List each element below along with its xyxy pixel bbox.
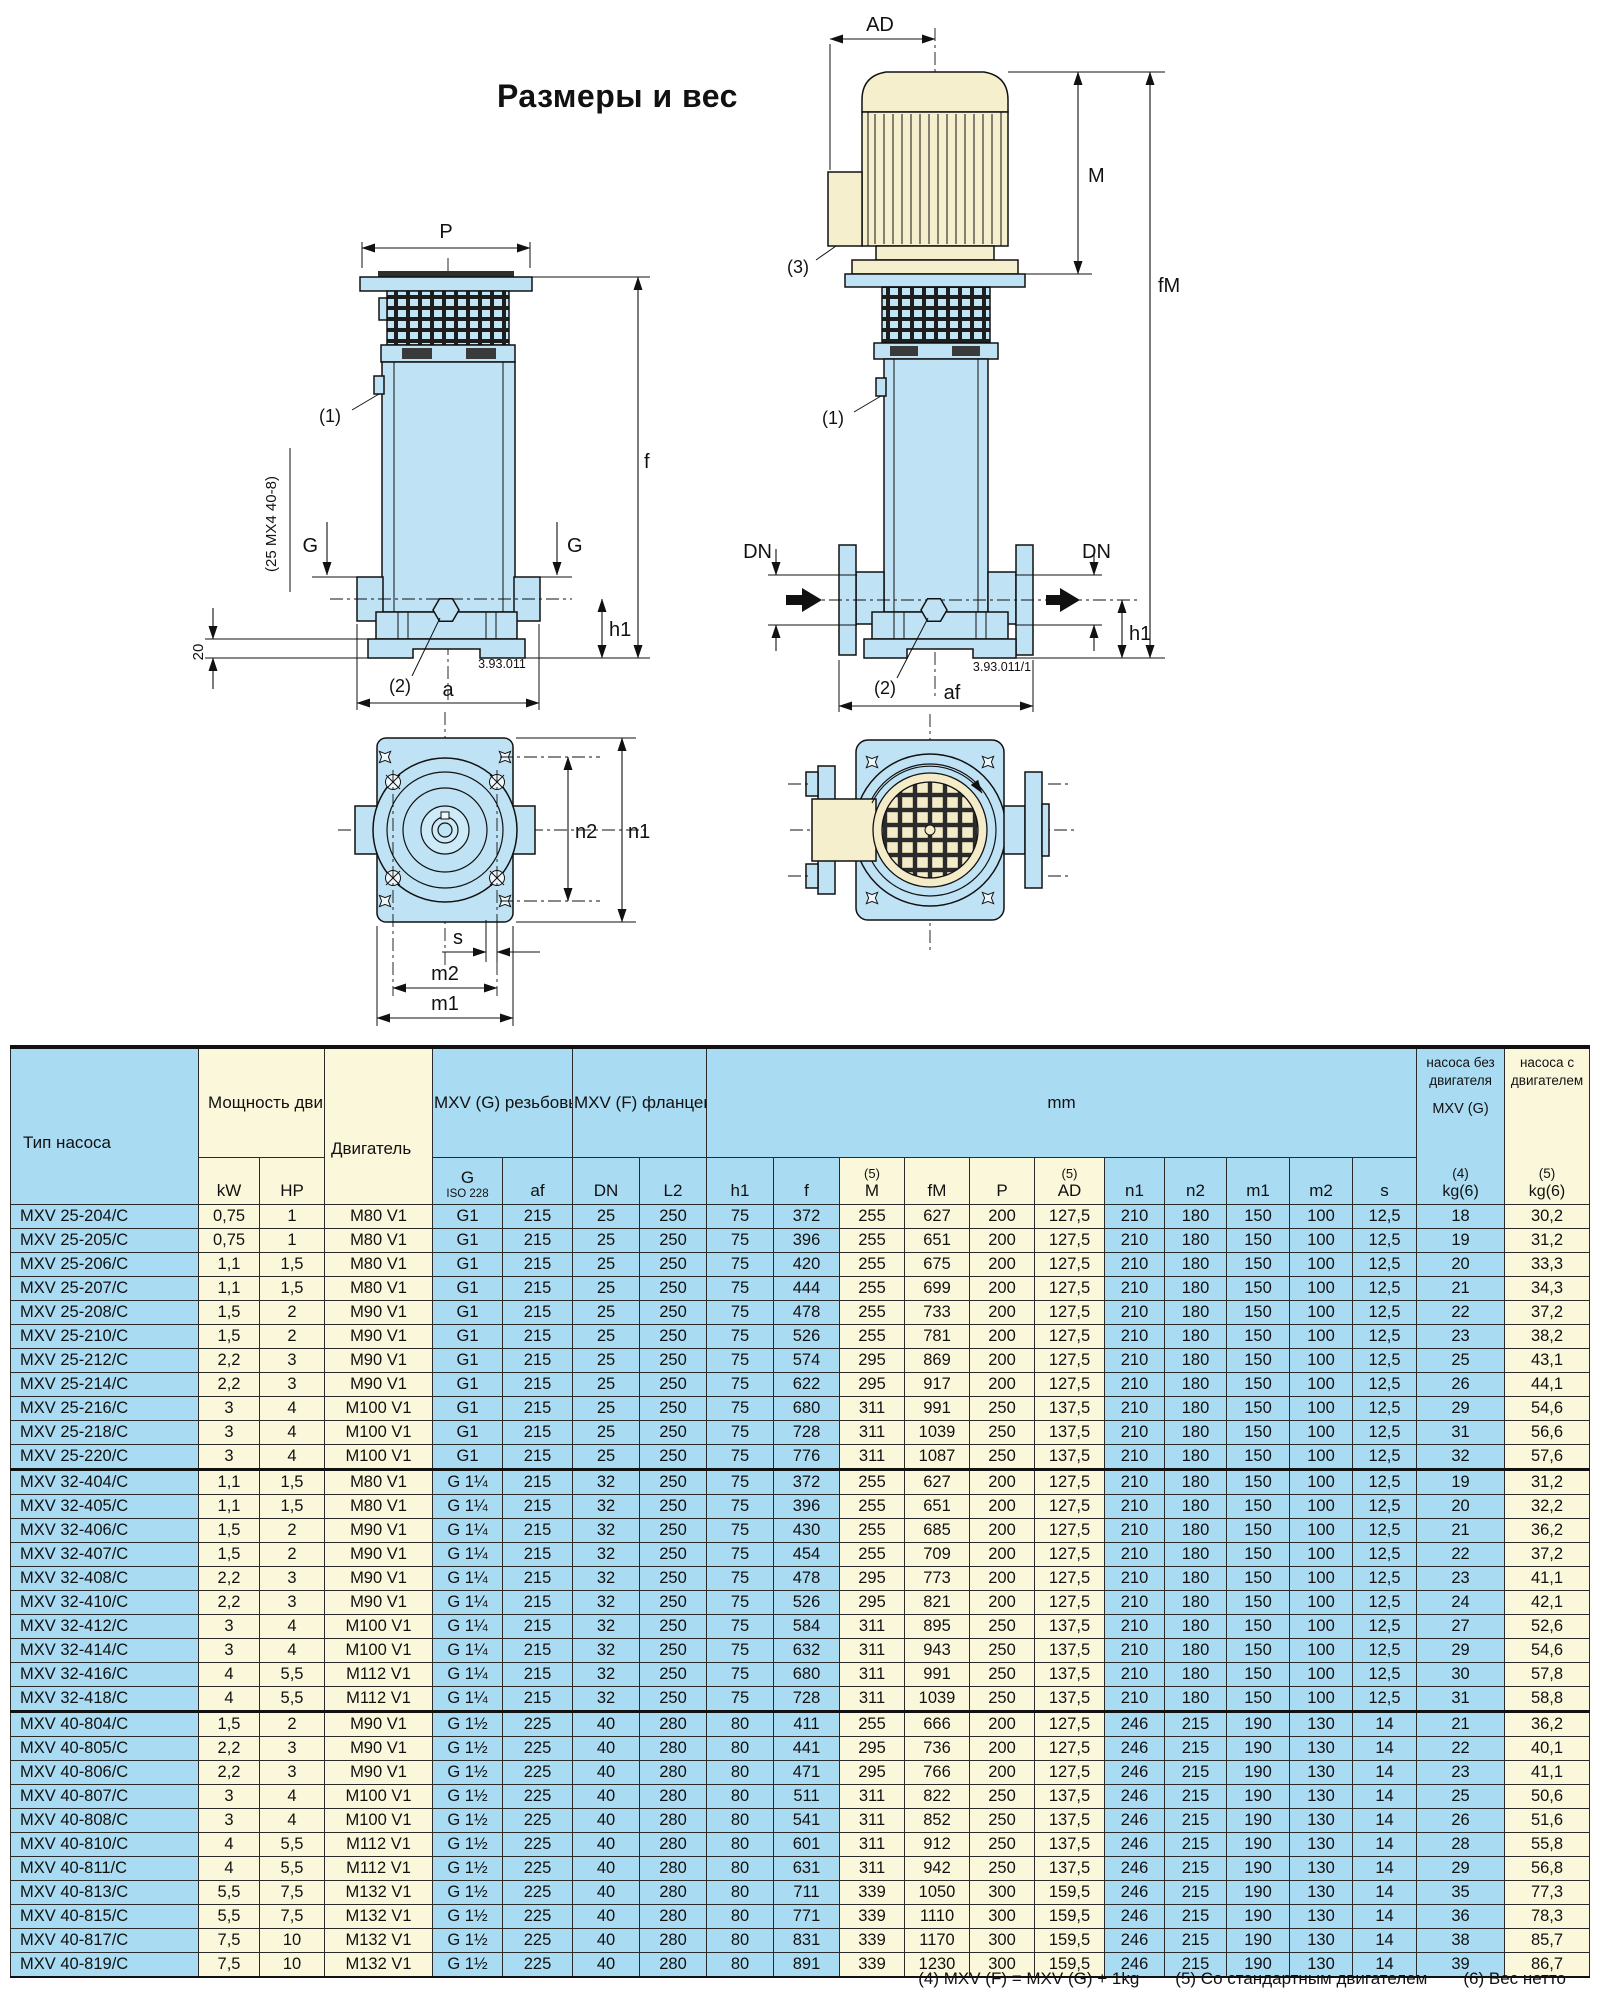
spec-cell: 215 [503, 1277, 573, 1301]
spec-cell: 75 [707, 1301, 774, 1325]
spec-cell: 27 [1417, 1615, 1505, 1639]
spec-cell: 12,5 [1353, 1253, 1417, 1277]
spec-cell: 25 [1417, 1785, 1505, 1809]
spec-cell: 12,5 [1353, 1663, 1417, 1687]
weight-without-note: (4) [1452, 1165, 1469, 1183]
spec-cell: 255 [840, 1205, 905, 1229]
spec-cell: 685 [905, 1519, 970, 1543]
table-row: MXV 32-405/C1,11,5M80 V1G 1¼215322507539… [11, 1495, 1590, 1519]
spec-cell: 10 [260, 1953, 325, 1978]
spec-cell: 215 [503, 1397, 573, 1421]
spec-cell: 23 [1417, 1567, 1505, 1591]
table-row: MXV 32-418/C45,5M112 V1G 1¼2153225075728… [11, 1687, 1590, 1712]
spec-cell: 430 [774, 1519, 840, 1543]
spec-cell: 75 [707, 1519, 774, 1543]
spec-cell: 280 [640, 1953, 707, 1978]
spec-cell: 180 [1165, 1253, 1227, 1277]
weight-unit: kg(6) [1442, 1183, 1478, 1201]
pump-type-cell: MXV 25-216/C [11, 1397, 199, 1421]
spec-cell: 190 [1227, 1712, 1290, 1737]
spec-cell: 26 [1417, 1373, 1505, 1397]
spec-cell: 25 [1417, 1349, 1505, 1373]
spec-cell: 246 [1105, 1881, 1165, 1905]
spec-cell: 300 [970, 1905, 1035, 1929]
unit-af: af [503, 1158, 573, 1205]
table-row: MXV 40-807/C34M100 V1G 1½225402808051131… [11, 1785, 1590, 1809]
spec-cell: 137,5 [1035, 1639, 1105, 1663]
spec-cell: 55,8 [1505, 1833, 1590, 1857]
spec-cell: 180 [1165, 1591, 1227, 1615]
spec-cell: 180 [1165, 1301, 1227, 1325]
spec-cell: 250 [640, 1445, 707, 1470]
spec-cell: 766 [905, 1761, 970, 1785]
spec-cell: 250 [640, 1205, 707, 1229]
spec-cell: 200 [970, 1567, 1035, 1591]
spec-cell: 215 [503, 1567, 573, 1591]
spec-cell: 215 [503, 1373, 573, 1397]
spec-cell: 225 [503, 1785, 573, 1809]
spec-cell: 80 [707, 1761, 774, 1785]
spec-cell: 471 [774, 1761, 840, 1785]
spec-cell: 311 [840, 1833, 905, 1857]
spec-cell: 210 [1105, 1591, 1165, 1615]
spec-cell: 21 [1417, 1519, 1505, 1543]
spec-cell: 14 [1353, 1929, 1417, 1953]
spec-cell: 75 [707, 1349, 774, 1373]
spec-cell: 12,5 [1353, 1325, 1417, 1349]
spec-cell: 190 [1227, 1905, 1290, 1929]
spec-cell: 150 [1227, 1349, 1290, 1373]
spec-table: Тип насоса Мощность двигателя Двигатель … [10, 1045, 1590, 1978]
spec-cell: 776 [774, 1445, 840, 1470]
spec-cell: G 1¼ [433, 1663, 503, 1687]
spec-cell: 250 [640, 1519, 707, 1543]
spec-cell: 200 [970, 1737, 1035, 1761]
spec-cell: M112 V1 [325, 1687, 433, 1712]
drawing-top-view-flanged [788, 714, 1075, 950]
spec-cell: 127,5 [1035, 1737, 1105, 1761]
spec-cell: 3 [199, 1397, 260, 1421]
spec-cell: M90 V1 [325, 1543, 433, 1567]
spec-cell: G1 [433, 1349, 503, 1373]
spec-cell: 127,5 [1035, 1567, 1105, 1591]
spec-cell: 159,5 [1035, 1881, 1105, 1905]
spec-cell: 38,2 [1505, 1325, 1590, 1349]
spec-cell: 180 [1165, 1445, 1227, 1470]
spec-cell: 75 [707, 1277, 774, 1301]
spec-cell: M100 V1 [325, 1445, 433, 1470]
spec-cell: 3 [199, 1639, 260, 1663]
spec-cell: G1 [433, 1421, 503, 1445]
spec-cell: 12,5 [1353, 1687, 1417, 1712]
spec-cell: 100 [1290, 1229, 1353, 1253]
spec-cell: 80 [707, 1881, 774, 1905]
spec-cell: 210 [1105, 1325, 1165, 1349]
spec-cell: 22 [1417, 1301, 1505, 1325]
spec-cell: 30,2 [1505, 1205, 1590, 1229]
pump-type-cell: MXV 32-405/C [11, 1495, 199, 1519]
spec-cell: 150 [1227, 1663, 1290, 1687]
spec-cell: 57,8 [1505, 1663, 1590, 1687]
unit-s: s [1353, 1158, 1417, 1205]
spec-cell: 250 [970, 1687, 1035, 1712]
spec-cell: 339 [840, 1953, 905, 1978]
spec-cell: 280 [640, 1712, 707, 1737]
spec-cell: G 1½ [433, 1857, 503, 1881]
table-row: MXV 40-810/C45,5M112 V1G 1½2254028080601… [11, 1833, 1590, 1857]
pump-type-cell: MXV 40-819/C [11, 1953, 199, 1978]
spec-cell: 75 [707, 1445, 774, 1470]
spec-cell: M132 V1 [325, 1905, 433, 1929]
spec-cell: 200 [970, 1373, 1035, 1397]
spec-cell: 2 [260, 1519, 325, 1543]
spec-cell: 190 [1227, 1881, 1290, 1905]
spec-cell: 75 [707, 1591, 774, 1615]
table-row: MXV 25-208/C1,52M90 V1G12152525075478255… [11, 1301, 1590, 1325]
spec-cell: 210 [1105, 1615, 1165, 1639]
spec-cell: 4 [199, 1687, 260, 1712]
spec-cell: 280 [640, 1809, 707, 1833]
spec-cell: 25 [573, 1301, 640, 1325]
table-row: MXV 32-404/C1,11,5M80 V1G 1¼215322507537… [11, 1470, 1590, 1495]
spec-cell: 25 [573, 1277, 640, 1301]
spec-cell: 210 [1105, 1470, 1165, 1495]
spec-cell: 150 [1227, 1470, 1290, 1495]
spec-cell: 311 [840, 1445, 905, 1470]
spec-cell: 150 [1227, 1373, 1290, 1397]
spec-cell: 159,5 [1035, 1905, 1105, 1929]
drawing-number: 3.93.011 [478, 657, 526, 671]
callout-1-right: (1) [822, 408, 844, 428]
spec-cell: 180 [1165, 1421, 1227, 1445]
spec-cell: M80 V1 [325, 1253, 433, 1277]
table-row: MXV 25-207/C1,11,5M80 V1G121525250754442… [11, 1277, 1590, 1301]
spec-cell: M80 V1 [325, 1470, 433, 1495]
col-header-mxv-f: MXV (F) фланцевые раструбы [573, 1047, 707, 1158]
spec-cell: 23 [1417, 1325, 1505, 1349]
spec-cell: 200 [970, 1712, 1035, 1737]
spec-cell: 200 [970, 1519, 1035, 1543]
spec-cell: M90 V1 [325, 1349, 433, 1373]
table-row: MXV 32-416/C45,5M112 V1G 1¼2153225075680… [11, 1663, 1590, 1687]
pump-type-cell: MXV 25-204/C [11, 1205, 199, 1229]
spec-cell: 280 [640, 1833, 707, 1857]
spec-cell: 675 [905, 1253, 970, 1277]
spec-cell: 180 [1165, 1373, 1227, 1397]
spec-cell: 255 [840, 1712, 905, 1737]
weight-without-series: MXV (G) [1432, 1101, 1488, 1117]
spec-cell: 300 [970, 1929, 1035, 1953]
spec-cell: 441 [774, 1737, 840, 1761]
spec-cell: 12,5 [1353, 1397, 1417, 1421]
spec-cell: 78,3 [1505, 1905, 1590, 1929]
spec-cell: 32 [573, 1543, 640, 1567]
spec-cell: 1,5 [199, 1712, 260, 1737]
spec-cell: 100 [1290, 1687, 1353, 1712]
spec-cell: 210 [1105, 1277, 1165, 1301]
pump-type-cell: MXV 25-218/C [11, 1421, 199, 1445]
pump-type-cell: MXV 40-808/C [11, 1809, 199, 1833]
table-row: MXV 40-817/C7,510M132 V1G 1½225402808083… [11, 1929, 1590, 1953]
spec-cell: 150 [1227, 1519, 1290, 1543]
spec-cell: 622 [774, 1373, 840, 1397]
spec-cell: 137,5 [1035, 1445, 1105, 1470]
spec-cell: 200 [970, 1277, 1035, 1301]
spec-cell: 130 [1290, 1929, 1353, 1953]
spec-cell: 250 [970, 1809, 1035, 1833]
spec-cell: 127,5 [1035, 1712, 1105, 1737]
spec-cell: 180 [1165, 1277, 1227, 1301]
spec-cell: G1 [433, 1445, 503, 1470]
spec-cell: 3 [199, 1421, 260, 1445]
spec-cell: 180 [1165, 1543, 1227, 1567]
spec-cell: 831 [774, 1929, 840, 1953]
spec-cell: 127,5 [1035, 1253, 1105, 1277]
pump-type-cell: MXV 40-813/C [11, 1881, 199, 1905]
callout-2-right: (2) [874, 678, 896, 698]
spec-cell: 7,5 [199, 1929, 260, 1953]
spec-cell: 100 [1290, 1615, 1353, 1639]
spec-cell: 1039 [905, 1687, 970, 1712]
spec-cell: 40 [573, 1785, 640, 1809]
spec-cell: M112 V1 [325, 1663, 433, 1687]
unit-m1: m1 [1227, 1158, 1290, 1205]
spec-cell: 75 [707, 1687, 774, 1712]
spec-cell: 150 [1227, 1495, 1290, 1519]
col-header-weight-without-motor: насоса без двигателя MXV (G) (4) kg(6) [1417, 1047, 1505, 1205]
pump-type-cell: MXV 32-410/C [11, 1591, 199, 1615]
spec-cell: 210 [1105, 1397, 1165, 1421]
unit-dn: DN [573, 1158, 640, 1205]
spec-cell: 1050 [905, 1881, 970, 1905]
spec-cell: 37,2 [1505, 1543, 1590, 1567]
table-row: MXV 25-205/C0,751M80 V1G1215252507539625… [11, 1229, 1590, 1253]
spec-cell: M100 V1 [325, 1639, 433, 1663]
spec-cell: 127,5 [1035, 1519, 1105, 1543]
dim-label-m1: m1 [431, 993, 459, 1015]
spec-cell: 250 [970, 1785, 1035, 1809]
spec-cell: M112 V1 [325, 1833, 433, 1857]
spec-cell: 180 [1165, 1205, 1227, 1229]
spec-cell: 311 [840, 1687, 905, 1712]
spec-cell: 5,5 [260, 1857, 325, 1881]
spec-cell: 444 [774, 1277, 840, 1301]
spec-cell: 255 [840, 1495, 905, 1519]
spec-cell: 311 [840, 1809, 905, 1833]
spec-cell: G 1¼ [433, 1687, 503, 1712]
spec-cell: 150 [1227, 1543, 1290, 1567]
spec-cell: 215 [503, 1639, 573, 1663]
spec-cell: 2 [260, 1325, 325, 1349]
dim-label-P: P [439, 221, 452, 243]
spec-cell: 150 [1227, 1639, 1290, 1663]
table-row: MXV 32-410/C2,23M90 V1G 1¼21532250755262… [11, 1591, 1590, 1615]
spec-cell: 215 [1165, 1857, 1227, 1881]
spec-cell: 14 [1353, 1761, 1417, 1785]
spec-cell: 225 [503, 1953, 573, 1978]
spec-cell: G1 [433, 1301, 503, 1325]
spec-cell: M90 V1 [325, 1519, 433, 1543]
spec-cell: 150 [1227, 1277, 1290, 1301]
spec-cell: 12,5 [1353, 1421, 1417, 1445]
spec-cell: G1 [433, 1229, 503, 1253]
spec-cell: M100 V1 [325, 1397, 433, 1421]
spec-cell: 295 [840, 1737, 905, 1761]
spec-cell: 912 [905, 1833, 970, 1857]
spec-cell: 246 [1105, 1712, 1165, 1737]
spec-cell: 75 [707, 1205, 774, 1229]
spec-cell: M100 V1 [325, 1785, 433, 1809]
drawing-pump-flanged-motor: AD M fM DN DN h1 [743, 14, 1180, 712]
spec-cell: 215 [503, 1687, 573, 1712]
spec-cell: 255 [840, 1229, 905, 1253]
spec-cell: 1,5 [260, 1495, 325, 1519]
spec-cell: 311 [840, 1663, 905, 1687]
spec-cell: 255 [840, 1470, 905, 1495]
spec-cell: G1 [433, 1277, 503, 1301]
spec-cell: 127,5 [1035, 1301, 1105, 1325]
spec-cell: 200 [970, 1761, 1035, 1785]
spec-cell: 210 [1105, 1567, 1165, 1591]
spec-cell: 12,5 [1353, 1277, 1417, 1301]
dim-label-M: M [1088, 165, 1105, 187]
spec-cell: G 1½ [433, 1905, 503, 1929]
spec-cell: 127,5 [1035, 1325, 1105, 1349]
spec-cell: 250 [640, 1325, 707, 1349]
spec-cell: 225 [503, 1881, 573, 1905]
spec-cell: 137,5 [1035, 1615, 1105, 1639]
spec-cell: 100 [1290, 1519, 1353, 1543]
spec-cell: 420 [774, 1253, 840, 1277]
spec-cell: 627 [905, 1205, 970, 1229]
spec-cell: 4 [260, 1615, 325, 1639]
spec-cell: 511 [774, 1785, 840, 1809]
dim-label-G-right: G [567, 535, 583, 557]
spec-cell: 584 [774, 1615, 840, 1639]
spec-cell: 31 [1417, 1421, 1505, 1445]
spec-cell: 180 [1165, 1687, 1227, 1712]
spec-cell: 12,5 [1353, 1519, 1417, 1543]
spec-cell: G1 [433, 1325, 503, 1349]
spec-cell: 5,5 [199, 1905, 260, 1929]
unit-p: P [970, 1158, 1035, 1205]
spec-cell: 1,5 [260, 1277, 325, 1301]
spec-cell: 75 [707, 1567, 774, 1591]
spec-cell: 80 [707, 1953, 774, 1978]
spec-cell: 210 [1105, 1445, 1165, 1470]
spec-cell: 31,2 [1505, 1229, 1590, 1253]
pump-type-cell: MXV 25-207/C [11, 1277, 199, 1301]
spec-cell: 991 [905, 1397, 970, 1421]
spec-cell: 246 [1105, 1833, 1165, 1857]
spec-cell: 14 [1353, 1857, 1417, 1881]
spec-cell: 250 [640, 1663, 707, 1687]
pump-type-cell: MXV 25-210/C [11, 1325, 199, 1349]
spec-cell: M90 V1 [325, 1737, 433, 1761]
spec-cell: 190 [1227, 1857, 1290, 1881]
spec-cell: 680 [774, 1663, 840, 1687]
spec-cell: G 1½ [433, 1953, 503, 1978]
spec-cell: 80 [707, 1929, 774, 1953]
spec-cell: 32 [1417, 1445, 1505, 1470]
spec-cell: 728 [774, 1687, 840, 1712]
drawing-number-right: 3.93.011/1 [973, 660, 1031, 674]
spec-cell: 100 [1290, 1445, 1353, 1470]
dim-label-DN-left: DN [743, 541, 772, 563]
spec-cell: 3 [260, 1373, 325, 1397]
unit-g: GISO 228 [433, 1158, 503, 1205]
spec-cell: 311 [840, 1639, 905, 1663]
spec-cell: 200 [970, 1591, 1035, 1615]
spec-cell: 991 [905, 1663, 970, 1687]
catalog-page: Размеры и вес [0, 0, 1600, 2001]
spec-cell: 300 [970, 1881, 1035, 1905]
col-header-pump-type: Тип насоса [11, 1047, 199, 1205]
spec-cell: 1039 [905, 1421, 970, 1445]
spec-cell: 4 [260, 1809, 325, 1833]
spec-cell: 130 [1290, 1905, 1353, 1929]
spec-cell: 29 [1417, 1397, 1505, 1421]
spec-cell: 40 [573, 1953, 640, 1978]
spec-cell: 210 [1105, 1687, 1165, 1712]
spec-cell: 40 [573, 1737, 640, 1761]
spec-cell: 246 [1105, 1737, 1165, 1761]
spec-cell: M100 V1 [325, 1809, 433, 1833]
spec-cell: 210 [1105, 1519, 1165, 1543]
spec-cell: M90 V1 [325, 1591, 433, 1615]
spec-cell: 2,2 [199, 1591, 260, 1615]
spec-cell: 215 [503, 1421, 573, 1445]
spec-cell: 80 [707, 1712, 774, 1737]
spec-cell: 36,2 [1505, 1712, 1590, 1737]
spec-cell: 210 [1105, 1639, 1165, 1663]
spec-cell: G 1½ [433, 1785, 503, 1809]
spec-cell: 781 [905, 1325, 970, 1349]
spec-cell: 255 [840, 1253, 905, 1277]
spec-cell: 75 [707, 1663, 774, 1687]
spec-cell: 372 [774, 1470, 840, 1495]
spec-cell: 1110 [905, 1905, 970, 1929]
weight-without-label: насоса без двигателя [1426, 1054, 1494, 1089]
spec-cell: 246 [1105, 1761, 1165, 1785]
spec-cell: 255 [840, 1519, 905, 1543]
spec-cell: 180 [1165, 1325, 1227, 1349]
spec-cell: 190 [1227, 1761, 1290, 1785]
spec-cell: 215 [1165, 1929, 1227, 1953]
spec-cell: 215 [1165, 1712, 1227, 1737]
spec-cell: 100 [1290, 1495, 1353, 1519]
spec-cell: 295 [840, 1349, 905, 1373]
spec-cell: G1 [433, 1397, 503, 1421]
spec-cell: 37,2 [1505, 1301, 1590, 1325]
spec-cell: 127,5 [1035, 1495, 1105, 1519]
spec-cell: 210 [1105, 1205, 1165, 1229]
spec-cell: 56,6 [1505, 1421, 1590, 1445]
spec-cell: 215 [503, 1253, 573, 1277]
spec-cell: 280 [640, 1905, 707, 1929]
spec-cell: 14 [1353, 1737, 1417, 1761]
spec-cell: 180 [1165, 1397, 1227, 1421]
spec-cell: 1,5 [260, 1253, 325, 1277]
spec-cell: 5,5 [199, 1881, 260, 1905]
spec-cell: 150 [1227, 1205, 1290, 1229]
spec-cell: 40 [573, 1761, 640, 1785]
spec-cell: 200 [970, 1470, 1035, 1495]
spec-cell: 215 [503, 1445, 573, 1470]
spec-cell: 35 [1417, 1881, 1505, 1905]
pump-type-cell: MXV 25-214/C [11, 1373, 199, 1397]
spec-cell: 32 [573, 1639, 640, 1663]
